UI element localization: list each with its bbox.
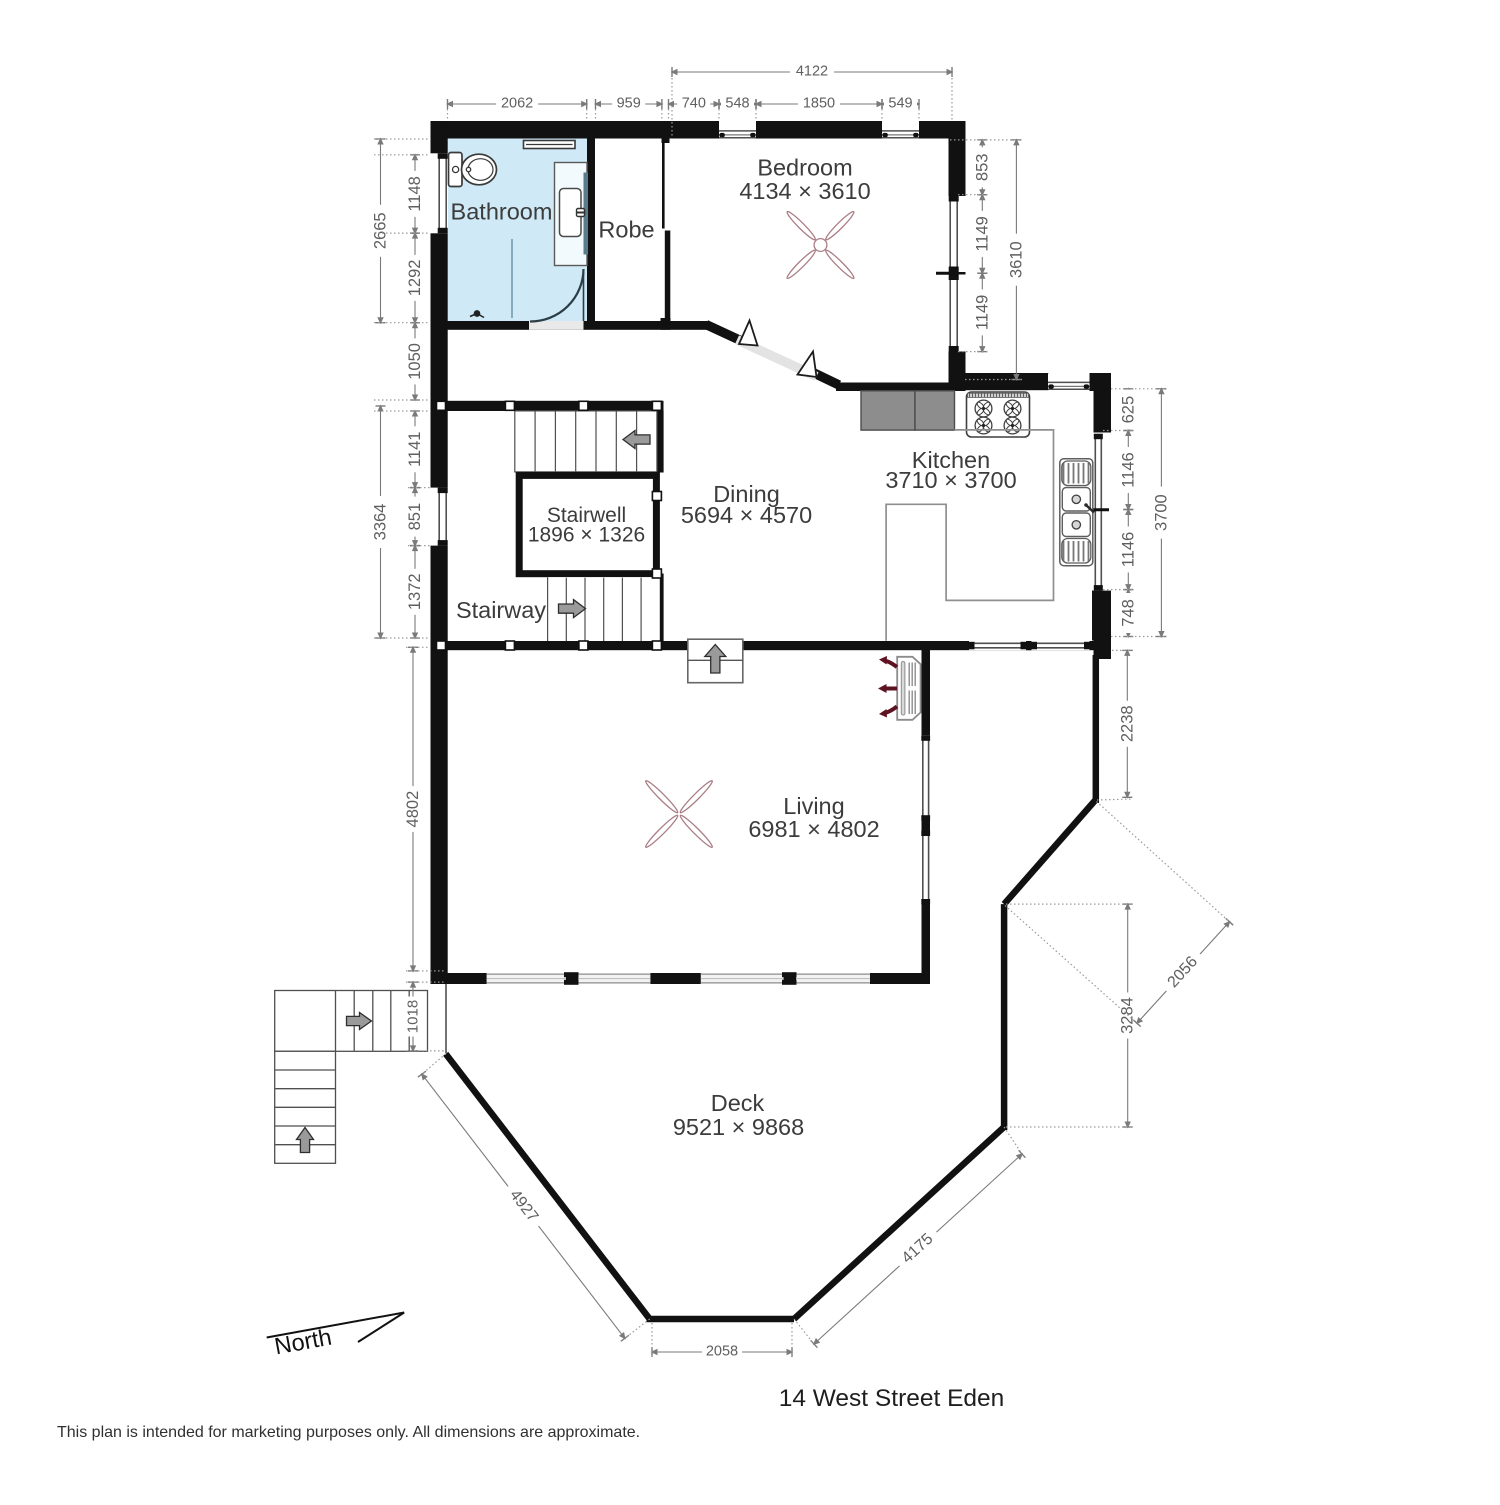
svg-text:548: 548 bbox=[725, 96, 749, 112]
svg-text:549: 549 bbox=[888, 96, 912, 112]
svg-text:1050: 1050 bbox=[406, 343, 424, 380]
svg-text:3610: 3610 bbox=[1007, 241, 1025, 278]
svg-text:9521 × 9868: 9521 × 9868 bbox=[673, 1114, 804, 1140]
svg-text:Bedroom: Bedroom bbox=[757, 155, 852, 181]
svg-text:1149: 1149 bbox=[973, 216, 991, 251]
svg-text:1141: 1141 bbox=[406, 432, 424, 467]
svg-text:2238: 2238 bbox=[1118, 705, 1136, 742]
svg-text:625: 625 bbox=[1119, 396, 1137, 424]
svg-text:14 West Street Eden: 14 West Street Eden bbox=[779, 1385, 1005, 1412]
svg-text:3700: 3700 bbox=[1152, 494, 1170, 531]
svg-text:1148: 1148 bbox=[406, 176, 424, 211]
svg-text:1292: 1292 bbox=[406, 260, 424, 297]
svg-text:1146: 1146 bbox=[1119, 452, 1137, 487]
svg-text:6981 × 4802: 6981 × 4802 bbox=[748, 816, 879, 842]
svg-text:851: 851 bbox=[406, 503, 424, 531]
svg-text:2665: 2665 bbox=[372, 212, 390, 249]
svg-text:748: 748 bbox=[1119, 599, 1137, 627]
svg-text:4122: 4122 bbox=[796, 64, 828, 80]
svg-text:1372: 1372 bbox=[406, 573, 424, 610]
svg-text:2058: 2058 bbox=[706, 1344, 738, 1360]
svg-text:1896 × 1326: 1896 × 1326 bbox=[528, 524, 645, 547]
svg-text:Deck: Deck bbox=[711, 1090, 765, 1116]
svg-text:853: 853 bbox=[973, 154, 991, 182]
svg-text:Stairway: Stairway bbox=[456, 597, 546, 623]
svg-text:3710 × 3700: 3710 × 3700 bbox=[885, 467, 1016, 493]
svg-text:959: 959 bbox=[617, 96, 641, 112]
svg-text:4134 × 3610: 4134 × 3610 bbox=[739, 178, 870, 204]
svg-text:Robe: Robe bbox=[598, 217, 654, 243]
svg-text:2062: 2062 bbox=[501, 96, 533, 112]
svg-text:1018: 1018 bbox=[405, 1000, 422, 1033]
svg-text:This plan is intended for mark: This plan is intended for marketing purp… bbox=[57, 1424, 640, 1441]
svg-text:1149: 1149 bbox=[973, 295, 991, 330]
svg-text:5694 × 4570: 5694 × 4570 bbox=[681, 502, 812, 528]
svg-text:740: 740 bbox=[682, 96, 706, 112]
svg-text:Bathroom: Bathroom bbox=[451, 199, 553, 225]
svg-text:1850: 1850 bbox=[803, 96, 835, 112]
svg-text:4802: 4802 bbox=[404, 791, 422, 828]
svg-text:3364: 3364 bbox=[372, 504, 390, 541]
svg-text:1146: 1146 bbox=[1119, 532, 1137, 567]
